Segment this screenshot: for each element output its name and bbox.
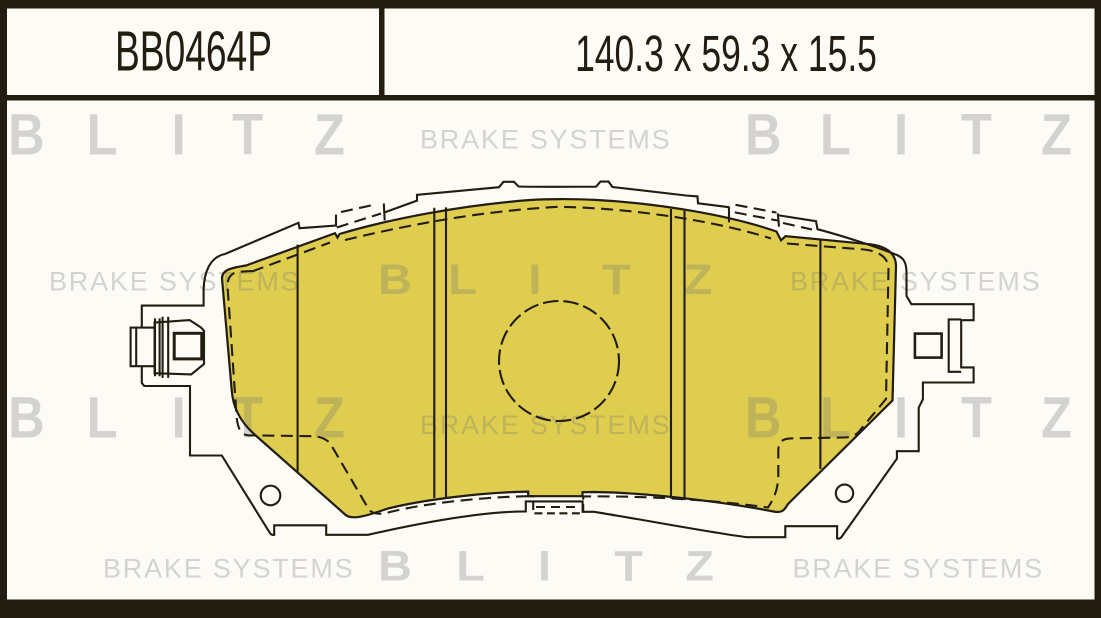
- svg-text:BRAKE SYSTEMS: BRAKE SYSTEMS: [793, 554, 1044, 584]
- svg-text:BRAKE SYSTEMS: BRAKE SYSTEMS: [790, 267, 1041, 297]
- svg-text:BRAKE SYSTEMS: BRAKE SYSTEMS: [103, 554, 354, 584]
- svg-text:BRAKE SYSTEMS: BRAKE SYSTEMS: [420, 124, 671, 154]
- svg-text:BRAKE SYSTEMS: BRAKE SYSTEMS: [420, 410, 671, 440]
- svg-text:140.3 x 59.3 x 15.5: 140.3 x 59.3 x 15.5: [575, 26, 877, 83]
- svg-text:BRAKE SYSTEMS: BRAKE SYSTEMS: [49, 267, 300, 297]
- svg-text:BB0464P: BB0464P: [115, 20, 272, 84]
